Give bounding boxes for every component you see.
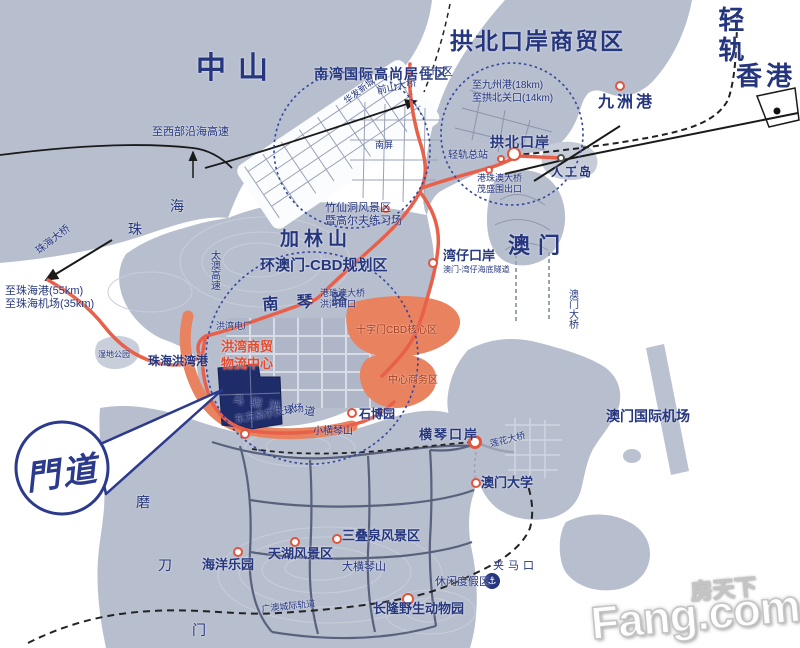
marker-zhuxiandong: [382, 205, 390, 213]
marker-haiyang-leyuan: [233, 547, 243, 557]
marker-rengongdao: [557, 154, 565, 162]
basemap-svg: [0, 0, 800, 648]
marker-sandiequan: [332, 534, 342, 544]
marker-changlong: [402, 593, 414, 605]
mendao-logo: 門道: [21, 441, 103, 500]
marker-qinggui-zongzhan: [497, 155, 505, 163]
marker-maoshengwei-chukou: [485, 166, 493, 174]
marker-wanzai-kouan: [428, 258, 438, 268]
marker-jiuzhougang: [615, 81, 625, 91]
marker-shiboyuan: [347, 408, 357, 418]
marker-dongfang-golf: [240, 429, 250, 439]
marker-hengqin-kouan: [468, 435, 482, 449]
anchor-icon: ⚓: [484, 573, 500, 589]
shizimen-cbd-zone: [346, 296, 460, 357]
map-canvas: ⚓ 中山轻轨拱北口岸商贸区香港澳门加林山南湾国际高尚居住区至市区至九州港(18k…: [0, 0, 800, 648]
marker-hongwan-chukou: [306, 297, 314, 305]
marker-tianhu: [290, 537, 300, 547]
marker-aomen-daxue: [471, 478, 481, 488]
marker-gongbei-kouan: [507, 147, 521, 161]
